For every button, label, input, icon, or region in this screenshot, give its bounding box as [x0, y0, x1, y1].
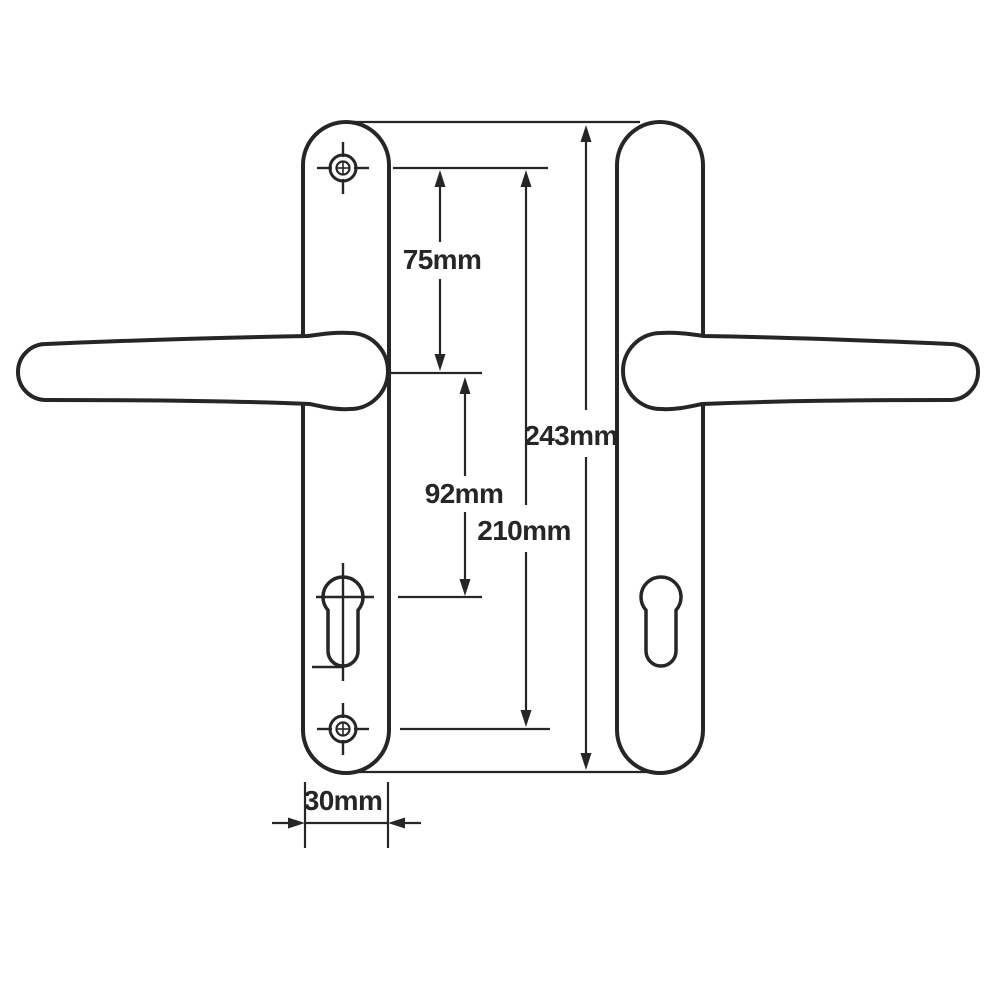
right-plate-features: [641, 577, 681, 666]
arrowhead-up: [460, 377, 471, 394]
right-backplate: [617, 122, 703, 773]
arrowhead-down: [581, 753, 592, 770]
dimension-label-92mm: 92mm: [425, 478, 504, 509]
arrowhead-down: [435, 354, 446, 371]
backplates: [303, 122, 703, 773]
arrowhead-left: [388, 818, 405, 829]
dimension-label-243mm: 243mm: [524, 420, 618, 451]
left-backplate: [303, 122, 389, 773]
lever-handles: [18, 333, 978, 409]
arrowhead-up: [435, 170, 446, 187]
right-euro-cylinder-cutout: [641, 577, 681, 666]
arrowhead-down: [460, 579, 471, 596]
handle-dimension-diagram: 75mm 92mm 210mm 243mm 30mm: [0, 0, 1000, 1004]
dimension-label-210mm: 210mm: [477, 515, 571, 546]
arrowhead-right: [288, 818, 305, 829]
arrowhead-up: [581, 125, 592, 142]
right-lever-handle: [623, 333, 978, 409]
dimension-label-30mm: 30mm: [304, 785, 383, 816]
diagram-canvas: 75mm 92mm 210mm 243mm 30mm: [0, 0, 1000, 1004]
arrowhead-up: [521, 170, 532, 187]
arrowhead-down: [521, 710, 532, 727]
dimension-label-75mm: 75mm: [403, 244, 482, 275]
left-lever-handle: [18, 333, 388, 409]
